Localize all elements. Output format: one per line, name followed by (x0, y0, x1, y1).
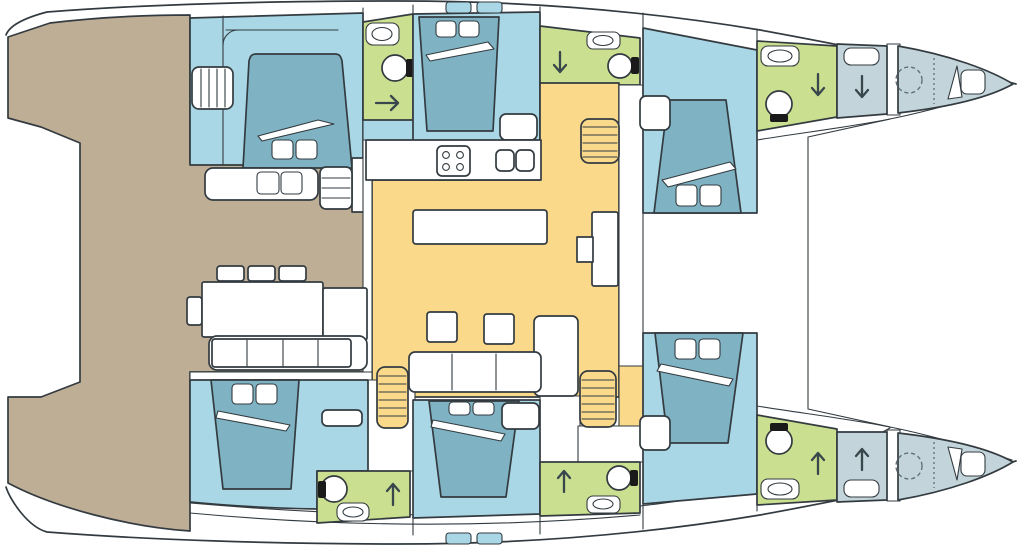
shelf (322, 410, 362, 426)
galley (366, 140, 541, 180)
pillow (676, 185, 697, 206)
cabin-port-forward (640, 28, 757, 213)
sink-icon (844, 48, 879, 65)
companionway-steps-icon (192, 67, 233, 109)
seat-bench-icon (205, 168, 318, 200)
stool (427, 312, 457, 342)
pillow (675, 339, 696, 359)
chair (279, 266, 306, 281)
pillow (296, 140, 317, 159)
pillow (449, 402, 470, 415)
pillow (961, 70, 985, 94)
forepeak-starboard-bow (896, 433, 1013, 500)
port-hull-corridor (363, 118, 413, 142)
galley-sink-icon (496, 150, 514, 171)
hatch-icon (477, 2, 502, 13)
cabin-door (640, 416, 670, 450)
staircase-starboard-forward (580, 371, 616, 427)
chair (187, 297, 202, 325)
cabin-starboard-center (413, 400, 540, 518)
bathroom-starboard-forward (540, 462, 640, 516)
pillow (281, 172, 302, 194)
pillow (436, 21, 456, 37)
chair (217, 266, 244, 281)
sink-icon (587, 32, 620, 49)
double-bed-icon (211, 380, 299, 489)
sink-icon (761, 479, 799, 499)
landing-tab (619, 366, 643, 426)
pillow (272, 140, 293, 159)
pillow (473, 402, 494, 415)
cockpit-table (202, 282, 323, 337)
sink-icon (337, 503, 369, 521)
staircase-starboard-aft (377, 367, 408, 428)
forepeak-starboard-entry (837, 432, 887, 502)
bathroom-starboard-bow (757, 415, 837, 505)
bathroom-port-aft (363, 14, 414, 120)
forepeak-port-entry (837, 44, 887, 118)
cockpit-side-unit (323, 288, 367, 340)
stool (484, 314, 514, 344)
double-bed-icon (243, 54, 352, 168)
stove-icon (437, 146, 470, 176)
staircase-port (581, 119, 619, 163)
bathroom-port-forward (540, 26, 640, 85)
pillow (961, 452, 985, 476)
stairs-landing (578, 426, 643, 462)
double-bed-icon (419, 17, 499, 131)
stairs-landing (540, 396, 580, 462)
forepeak-port-bow (896, 46, 1013, 113)
saloon-right-wall (619, 85, 643, 366)
sliding-door (592, 212, 618, 286)
pillow (699, 339, 720, 359)
cockpit-bench (209, 336, 367, 370)
pillow (232, 384, 253, 404)
galley-sink-icon (516, 150, 534, 171)
hatch-icon (477, 533, 502, 544)
sink-icon (587, 496, 620, 513)
pillow (700, 185, 721, 206)
chair (248, 266, 275, 281)
walkway-band (190, 372, 372, 380)
sink-icon (761, 46, 799, 66)
sofa-bench (409, 352, 541, 392)
saloon-table (413, 210, 547, 244)
hatch-icon (446, 2, 471, 13)
cabin-door (502, 403, 539, 429)
hatch-icon (446, 533, 471, 544)
pillow (257, 172, 279, 194)
cabin-door (640, 96, 670, 130)
cabin-port-aft (190, 13, 370, 212)
sink-icon (844, 480, 879, 497)
cabin-starboard-forward (640, 333, 757, 504)
door-handle (577, 237, 593, 262)
pillow (459, 21, 479, 37)
cabin-door (500, 114, 537, 140)
pillow (256, 384, 277, 404)
cabin-port-center (413, 12, 540, 141)
bathroom-port-bow (757, 41, 837, 131)
floor-plan-svg (0, 0, 1024, 546)
sink-icon (366, 23, 399, 45)
bathroom-starboard-aft (317, 471, 410, 523)
catamaran-floor-plan (0, 0, 1024, 546)
foredeck-beam-lines (808, 119, 890, 427)
